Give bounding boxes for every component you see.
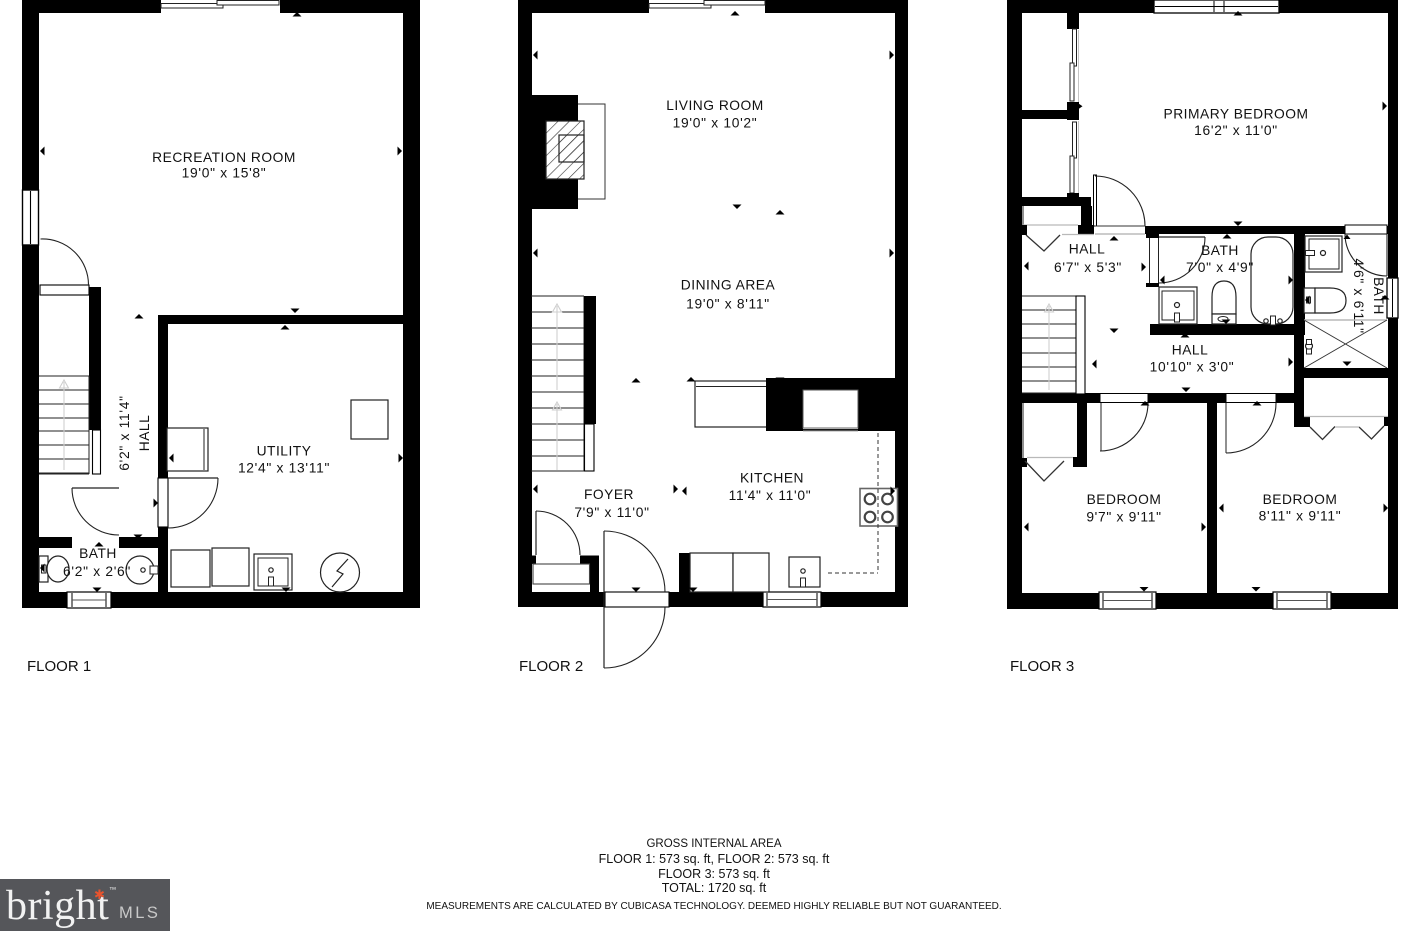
svg-text:MEASUREMENTS ARE CALCULATED BY: MEASUREMENTS ARE CALCULATED BY CUBICASA … (426, 901, 1001, 912)
svg-text:11'4" x 11'0": 11'4" x 11'0" (729, 488, 812, 503)
svg-text:10'10" x 3'0": 10'10" x 3'0" (1150, 360, 1235, 375)
svg-text:6'7" x 5'3": 6'7" x 5'3" (1054, 260, 1122, 275)
svg-text:19'0" x 15'8": 19'0" x 15'8" (182, 166, 267, 181)
svg-text:RECREATION ROOM: RECREATION ROOM (152, 150, 296, 165)
svg-text:MLS: MLS (119, 904, 160, 922)
svg-text:6'2" x 2'6": 6'2" x 2'6" (63, 564, 131, 579)
svg-text:DINING AREA: DINING AREA (681, 278, 776, 293)
svg-text:BATH: BATH (79, 546, 117, 561)
svg-text:FLOOR 3: FLOOR 3 (1010, 658, 1074, 675)
svg-text:7'0" x 4'9": 7'0" x 4'9" (1186, 260, 1254, 275)
svg-text:PRIMARY BEDROOM: PRIMARY BEDROOM (1164, 107, 1309, 122)
svg-text:BEDROOM: BEDROOM (1263, 492, 1338, 507)
svg-text:TOTAL: 1720 sq. ft: TOTAL: 1720 sq. ft (662, 881, 767, 895)
svg-text:6'2" x 11'4": 6'2" x 11'4" (117, 395, 132, 470)
svg-text:8'11" x 9'11": 8'11" x 9'11" (1259, 509, 1342, 524)
svg-text:9'7" x 9'11": 9'7" x 9'11" (1086, 510, 1161, 525)
svg-text:✱: ✱ (94, 887, 105, 902)
svg-text:HALL: HALL (1069, 242, 1106, 257)
svg-text:FLOOR 2: FLOOR 2 (519, 658, 583, 675)
svg-text:4'6" x 6'11": 4'6" x 6'11" (1351, 258, 1366, 333)
svg-text:16'2" x 11'0": 16'2" x 11'0" (1194, 123, 1278, 138)
svg-text:GROSS INTERNAL AREA: GROSS INTERNAL AREA (646, 838, 781, 850)
svg-text:HALL: HALL (137, 415, 152, 452)
svg-text:™: ™ (109, 885, 117, 894)
svg-text:LIVING ROOM: LIVING ROOM (666, 98, 764, 113)
svg-text:19'0" x 8'11": 19'0" x 8'11" (686, 297, 770, 312)
svg-text:UTILITY: UTILITY (257, 444, 312, 459)
svg-text:FLOOR 1: FLOOR 1 (27, 658, 91, 675)
svg-text:12'4" x 13'11": 12'4" x 13'11" (238, 461, 330, 476)
svg-text:7'9" x 11'0": 7'9" x 11'0" (574, 505, 649, 520)
svg-text:BATH: BATH (1371, 277, 1386, 315)
svg-text:FLOOR 3: 573 sq. ft: FLOOR 3: 573 sq. ft (658, 867, 770, 881)
svg-text:KITCHEN: KITCHEN (740, 471, 804, 486)
svg-text:19'0" x 10'2": 19'0" x 10'2" (673, 116, 758, 131)
svg-text:BEDROOM: BEDROOM (1087, 492, 1162, 507)
svg-text:FLOOR 1: 573 sq. ft, FLOOR 2:: FLOOR 1: 573 sq. ft, FLOOR 2: 573 sq. ft (599, 852, 830, 866)
svg-text:HALL: HALL (1172, 343, 1209, 358)
svg-text:FOYER: FOYER (584, 487, 634, 502)
svg-text:BATH: BATH (1201, 243, 1239, 258)
